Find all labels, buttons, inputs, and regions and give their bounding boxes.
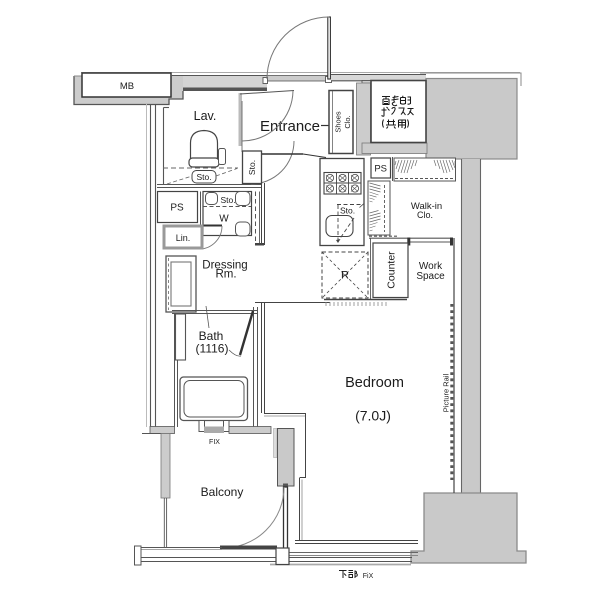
svg-text:Lin.: Lin. bbox=[176, 233, 191, 243]
svg-text:PS: PS bbox=[374, 164, 387, 175]
svg-text:Clo.: Clo. bbox=[343, 115, 352, 128]
svg-text:Sto.: Sto. bbox=[196, 172, 211, 182]
svg-text:Bedroom: Bedroom bbox=[345, 375, 404, 391]
svg-text:Clo.: Clo. bbox=[417, 210, 433, 220]
svg-text:Balcony: Balcony bbox=[201, 485, 244, 499]
svg-text:Rm.: Rm. bbox=[215, 269, 236, 281]
svg-text:Picture Rail: Picture Rail bbox=[442, 374, 451, 413]
svg-text:Sto.: Sto. bbox=[340, 206, 355, 216]
svg-text:W: W bbox=[219, 214, 229, 225]
svg-text:FIX: FIX bbox=[209, 439, 220, 446]
svg-text:Sto.: Sto. bbox=[247, 160, 257, 175]
svg-text:Sto.: Sto. bbox=[220, 195, 235, 205]
svg-text:Lav.: Lav. bbox=[194, 109, 217, 123]
svg-text:Entrance: Entrance bbox=[260, 118, 320, 135]
svg-text:FiX: FiX bbox=[363, 573, 374, 580]
svg-text:(7.0J): (7.0J) bbox=[355, 408, 391, 424]
svg-text:R: R bbox=[341, 270, 349, 282]
svg-text:Counter: Counter bbox=[386, 251, 398, 289]
svg-text:MB: MB bbox=[120, 81, 134, 92]
svg-text:Space: Space bbox=[416, 271, 445, 282]
svg-text:PS: PS bbox=[170, 203, 184, 214]
svg-text:Shoes: Shoes bbox=[334, 111, 343, 133]
svg-text:(1116): (1116) bbox=[196, 342, 229, 356]
